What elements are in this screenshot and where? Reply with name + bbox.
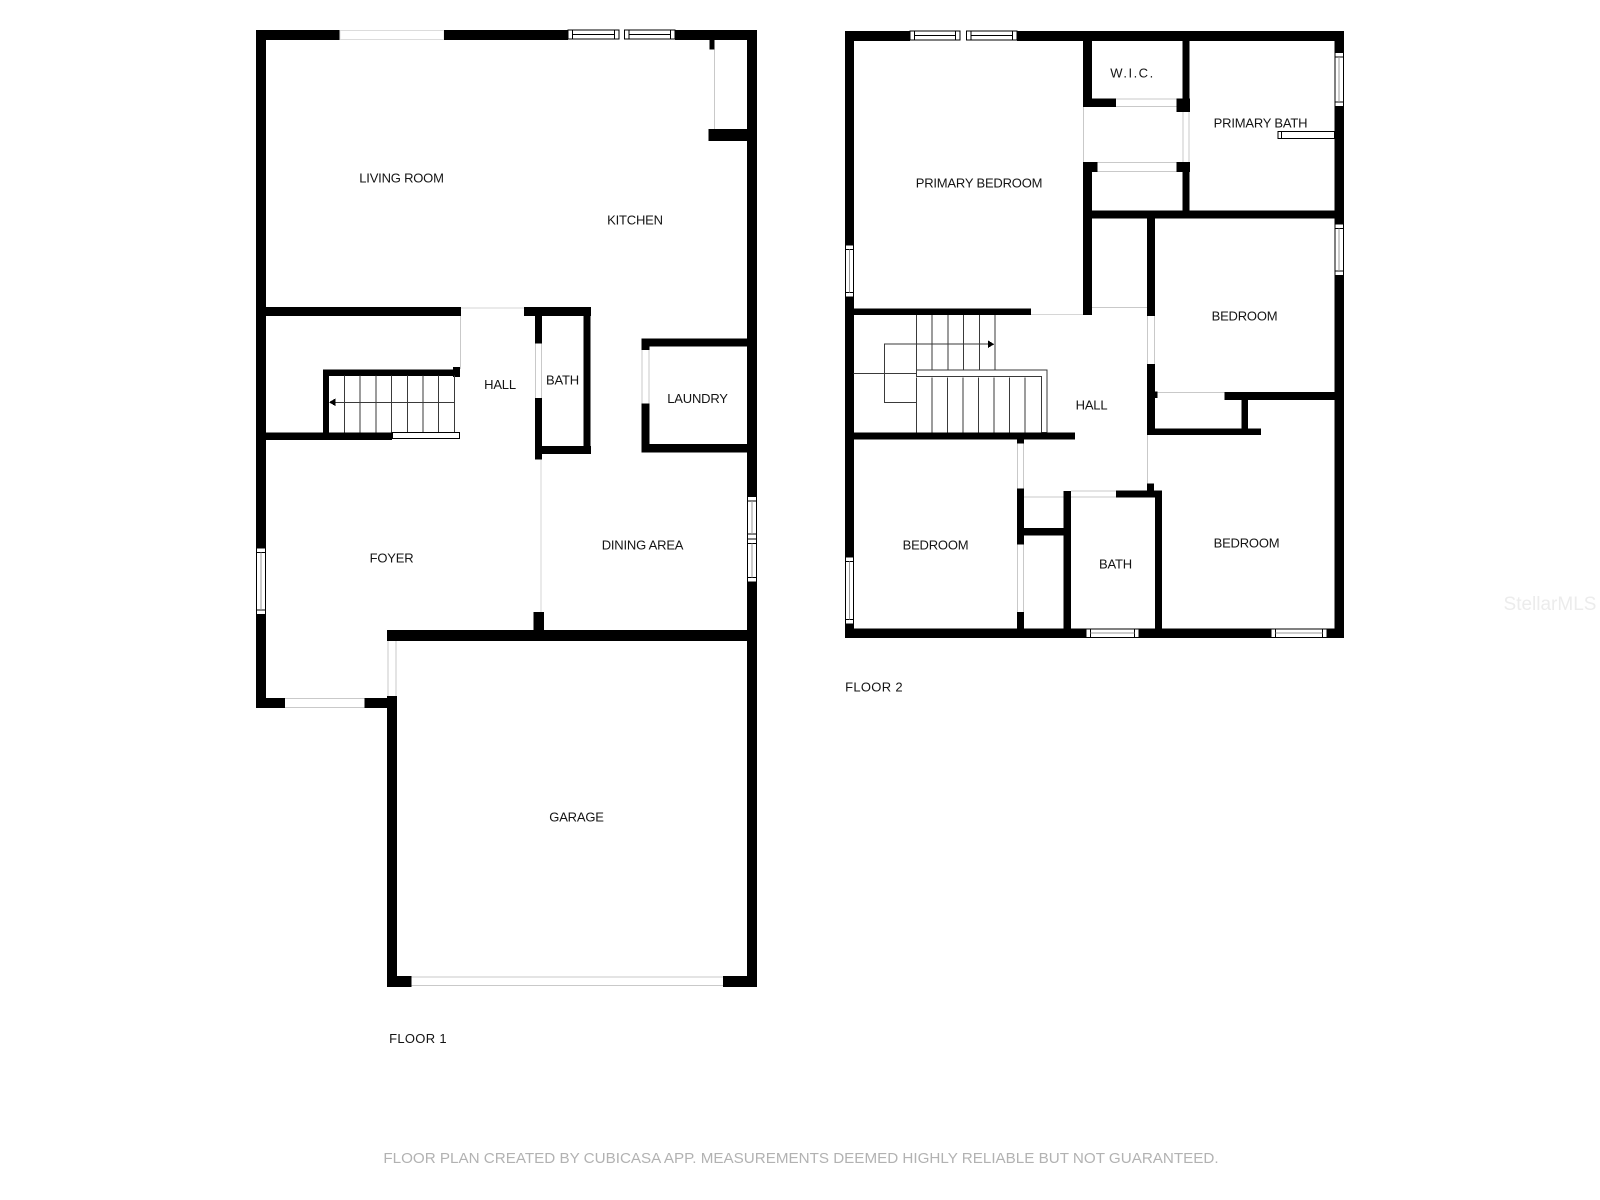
svg-text:BATH: BATH bbox=[1099, 557, 1132, 572]
svg-text:FLOOR 1: FLOOR 1 bbox=[389, 1031, 447, 1046]
svg-text:FLOOR PLAN CREATED BY CUBICASA: FLOOR PLAN CREATED BY CUBICASA APP. MEAS… bbox=[383, 1150, 1218, 1167]
svg-text:HALL: HALL bbox=[1076, 398, 1108, 413]
svg-text:BEDROOM: BEDROOM bbox=[1214, 536, 1280, 551]
svg-text:PRIMARY BEDROOM: PRIMARY BEDROOM bbox=[916, 176, 1043, 191]
svg-text:StellarMLS: StellarMLS bbox=[1504, 594, 1597, 615]
svg-text:LIVING ROOM: LIVING ROOM bbox=[359, 171, 443, 186]
svg-text:DINING AREA: DINING AREA bbox=[602, 538, 684, 553]
svg-text:KITCHEN: KITCHEN bbox=[607, 213, 663, 228]
svg-text:BATH: BATH bbox=[546, 373, 579, 388]
svg-text:BEDROOM: BEDROOM bbox=[903, 538, 969, 553]
svg-text:W.I.C.: W.I.C. bbox=[1110, 66, 1154, 81]
svg-text:LAUNDRY: LAUNDRY bbox=[667, 391, 728, 406]
svg-text:FLOOR 2: FLOOR 2 bbox=[845, 680, 903, 695]
svg-text:BEDROOM: BEDROOM bbox=[1212, 309, 1278, 324]
svg-text:GARAGE: GARAGE bbox=[549, 810, 604, 825]
svg-text:HALL: HALL bbox=[484, 377, 516, 392]
svg-text:FOYER: FOYER bbox=[370, 551, 414, 566]
svg-text:PRIMARY BATH: PRIMARY BATH bbox=[1214, 116, 1308, 131]
